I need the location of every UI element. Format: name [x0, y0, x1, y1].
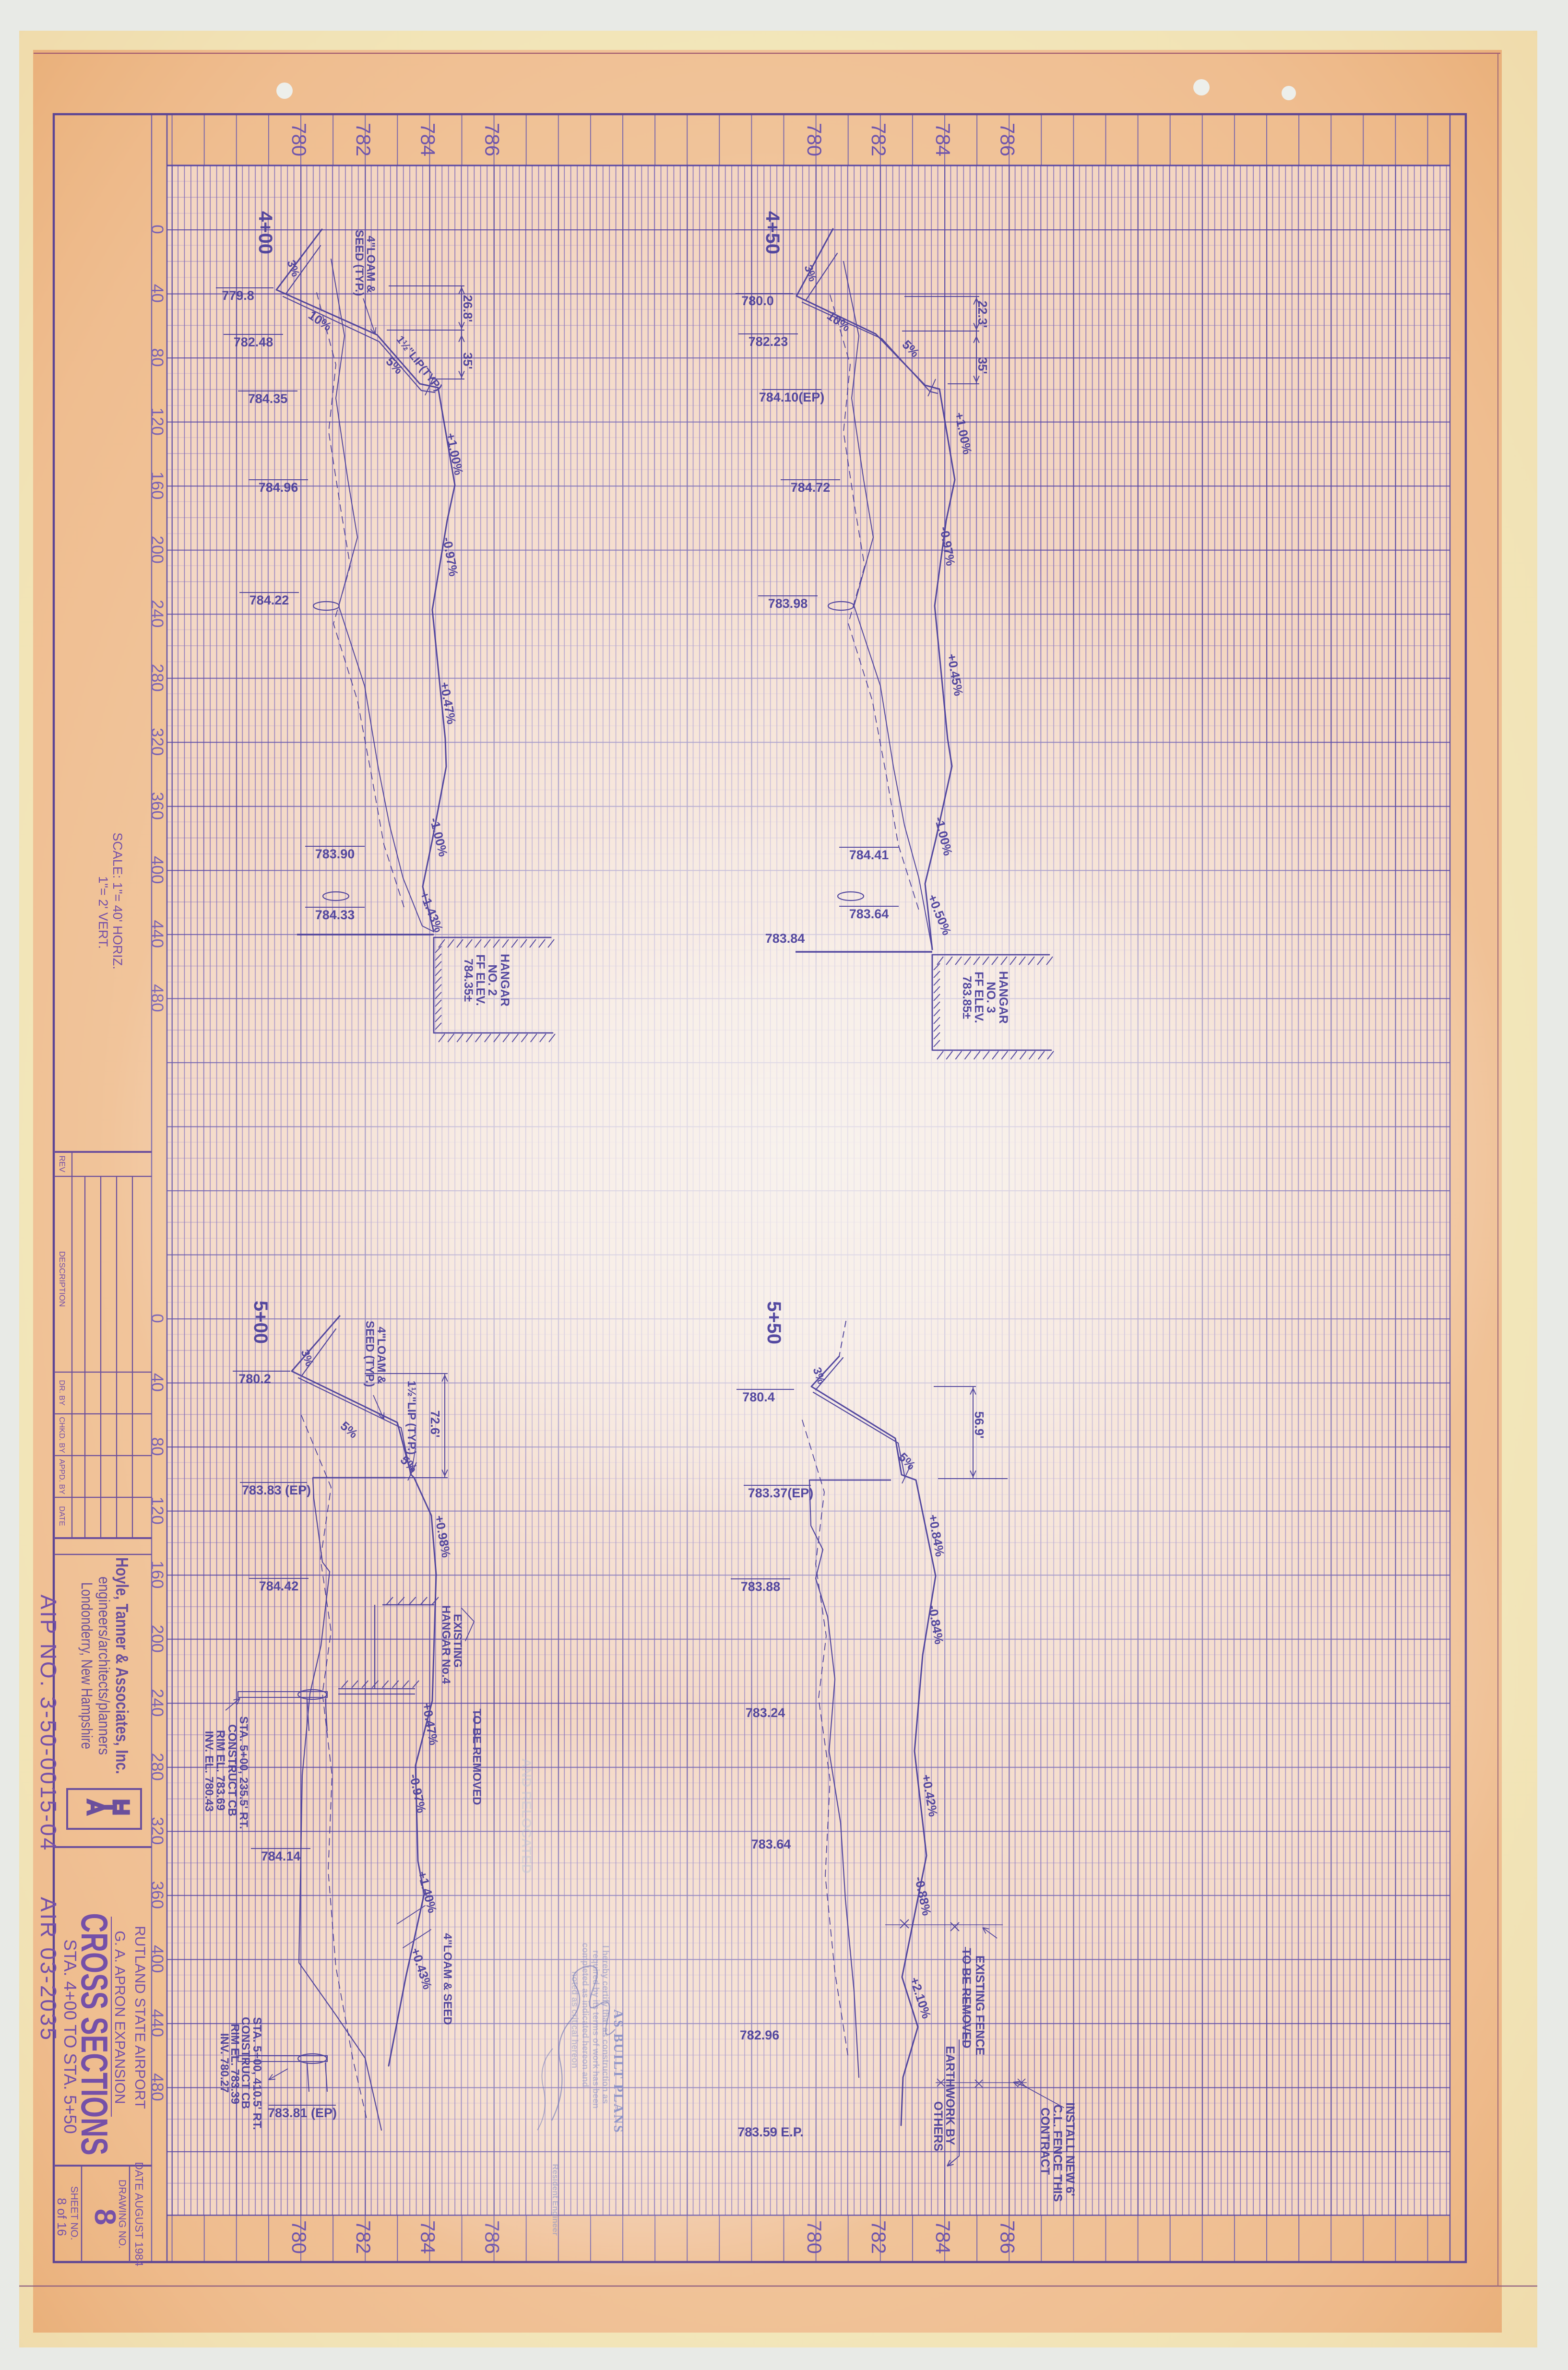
- svg-text:Resident Engineer: Resident Engineer: [551, 2164, 560, 2236]
- svg-text:4+00: 4+00: [255, 211, 276, 254]
- svg-text:26.8': 26.8': [461, 295, 475, 322]
- svg-text:780.4: 780.4: [742, 1390, 775, 1404]
- svg-text:TO BE REMOVED: TO BE REMOVED: [470, 1709, 483, 1805]
- svg-text:784.35±: 784.35±: [462, 959, 475, 1002]
- svg-text:3%: 3%: [298, 1348, 316, 1368]
- svg-text:5%: 5%: [383, 354, 406, 377]
- svg-text:NO. 2: NO. 2: [486, 964, 499, 995]
- svg-text:+0.47%: +0.47%: [437, 681, 459, 725]
- svg-text:INSTALL NEW 6': INSTALL NEW 6': [1063, 2102, 1077, 2196]
- svg-text:783.24: 783.24: [746, 1706, 785, 1720]
- svg-text:782.23: 782.23: [748, 334, 788, 349]
- svg-text:+0.50%: +0.50%: [925, 892, 954, 937]
- svg-text:784.42: 784.42: [259, 1579, 299, 1593]
- svg-text:+2.10%: +2.10%: [907, 1975, 934, 2020]
- svg-text:783.37(EP): 783.37(EP): [748, 1486, 814, 1500]
- svg-text:-0.97%: -0.97%: [440, 536, 461, 577]
- svg-text:+0.43%: +0.43%: [408, 1946, 435, 1991]
- svg-text:4"LOAM & SEED: 4"LOAM & SEED: [441, 1933, 454, 2025]
- svg-text:782.48: 782.48: [234, 335, 273, 349]
- svg-text:required by its terms of work: required by its terms of work has been: [591, 1950, 601, 2109]
- svg-text:5%: 5%: [899, 337, 922, 360]
- svg-text:3%: 3%: [810, 1366, 828, 1386]
- svg-text:56.9': 56.9': [972, 1411, 986, 1439]
- svg-text:+0.98%: +0.98%: [432, 1514, 453, 1559]
- svg-text:784.35: 784.35: [248, 391, 288, 406]
- svg-text:5%: 5%: [397, 1453, 420, 1476]
- svg-text:784.22: 784.22: [249, 593, 289, 607]
- svg-text:5+50: 5+50: [763, 1301, 784, 1344]
- svg-text:AS BUILT PLANS: AS BUILT PLANS: [611, 2009, 626, 2134]
- svg-text:783.64: 783.64: [751, 1837, 791, 1851]
- svg-text:780.0: 780.0: [741, 294, 774, 308]
- svg-text:783.84: 783.84: [765, 931, 805, 946]
- svg-text:-1.00%: -1.00%: [427, 816, 451, 858]
- svg-text:-1.00%: -1.00%: [932, 815, 955, 857]
- svg-text:HANGAR: HANGAR: [997, 971, 1010, 1024]
- svg-text:+0.84%: +0.84%: [926, 1513, 947, 1558]
- svg-text:4+50: 4+50: [762, 211, 783, 254]
- svg-text:INV. EL. 780.43: INV. EL. 780.43: [202, 1731, 215, 1812]
- svg-text:+0.45%: +0.45%: [944, 652, 966, 697]
- svg-text:NO. 3: NO. 3: [984, 982, 998, 1013]
- svg-text:EARTHWORK BY: EARTHWORK BY: [943, 2046, 957, 2145]
- svg-text:22.3': 22.3': [975, 301, 990, 328]
- svg-text:783.83 (EP): 783.83 (EP): [242, 1483, 311, 1497]
- svg-text:784.72: 784.72: [791, 480, 831, 495]
- svg-text:+1.00%: +1.00%: [952, 411, 975, 456]
- svg-text:+1.40%: +1.40%: [415, 1870, 440, 1915]
- svg-text:784.10(EP): 784.10(EP): [759, 390, 825, 404]
- svg-text:SEED (TYP.): SEED (TYP.): [353, 230, 366, 296]
- svg-text:784.41: 784.41: [849, 848, 889, 862]
- svg-text:STA. 5+00, 235.5' RT.: STA. 5+00, 235.5' RT.: [237, 1716, 250, 1829]
- svg-text:-0.97%: -0.97%: [407, 1773, 429, 1814]
- svg-text:I hereby certify that as const: I hereby certify that as construction as: [601, 1945, 610, 2104]
- svg-text:EXISTING: EXISTING: [451, 1614, 464, 1668]
- svg-text:HANGAR: HANGAR: [498, 954, 511, 1007]
- svg-text:C.L. FENCE THIS: C.L. FENCE THIS: [1051, 2105, 1064, 2202]
- svg-text:783.88: 783.88: [741, 1579, 781, 1594]
- svg-text:35': 35': [975, 357, 990, 374]
- svg-text:783.59 E.P.: 783.59 E.P.: [737, 2125, 804, 2139]
- svg-text:784.33: 784.33: [315, 908, 355, 922]
- svg-text:completed as indicated hereon: completed as indicated hereon and: [581, 1943, 590, 2087]
- svg-text:5%: 5%: [338, 1419, 361, 1441]
- svg-text:FF ELEV.: FF ELEV.: [474, 954, 487, 1006]
- svg-text:-0.84%: -0.84%: [926, 1604, 947, 1645]
- svg-text:1½"LIP (TYP.): 1½"LIP (TYP.): [405, 1381, 418, 1455]
- svg-text:784.96: 784.96: [259, 480, 298, 495]
- svg-text:SEED (TYP.): SEED (TYP.): [363, 1321, 376, 1387]
- svg-text:783.64: 783.64: [849, 907, 889, 921]
- svg-text:784.14: 784.14: [261, 1849, 301, 1863]
- svg-text:AND RELOCATED: AND RELOCATED: [519, 1758, 534, 1874]
- svg-text:FF ELEV.: FF ELEV.: [972, 972, 986, 1023]
- svg-text:INV. 780.27: INV. 780.27: [218, 2033, 231, 2093]
- svg-text:CONSTRUCT CB: CONSTRUCT CB: [226, 1724, 238, 1816]
- svg-text:+1.43%: +1.43%: [417, 889, 446, 935]
- svg-text:TO BE REMOVED: TO BE REMOVED: [960, 1948, 973, 2048]
- svg-text:RIM EL. 783.69: RIM EL. 783.69: [214, 1730, 227, 1811]
- svg-text:782.96: 782.96: [740, 2028, 780, 2042]
- svg-text:5+00: 5+00: [250, 1301, 271, 1344]
- svg-text:779.8: 779.8: [222, 288, 254, 303]
- svg-text:5%: 5%: [895, 1450, 918, 1473]
- svg-text:4"LOAM &: 4"LOAM &: [364, 236, 377, 293]
- svg-text:783.85±: 783.85±: [960, 976, 974, 1019]
- svg-text:EXISTING FENCE: EXISTING FENCE: [973, 1955, 986, 2055]
- svg-text:783.81 (EP): 783.81 (EP): [268, 2106, 337, 2120]
- svg-text:CONTRACT: CONTRACT: [1038, 2108, 1052, 2175]
- svg-text:STA. 5+00, 410.5' RT.: STA. 5+00, 410.5' RT.: [250, 2017, 263, 2130]
- svg-text:OTHERS: OTHERS: [931, 2101, 945, 2151]
- svg-text:783.90: 783.90: [315, 847, 355, 861]
- svg-text:780.2: 780.2: [238, 1372, 271, 1386]
- svg-text:10%: 10%: [306, 308, 334, 333]
- svg-text:783.98: 783.98: [768, 596, 808, 611]
- svg-text:35': 35': [461, 352, 475, 369]
- svg-text:HANGAR No.4: HANGAR No.4: [440, 1605, 452, 1684]
- svg-text:+1.00%: +1.00%: [443, 432, 466, 476]
- svg-text:3%: 3%: [801, 263, 819, 284]
- svg-text:+0.42%: +0.42%: [919, 1773, 940, 1818]
- svg-text:4"LOAM &: 4"LOAM &: [375, 1327, 388, 1384]
- svg-text:72.6': 72.6': [428, 1410, 442, 1438]
